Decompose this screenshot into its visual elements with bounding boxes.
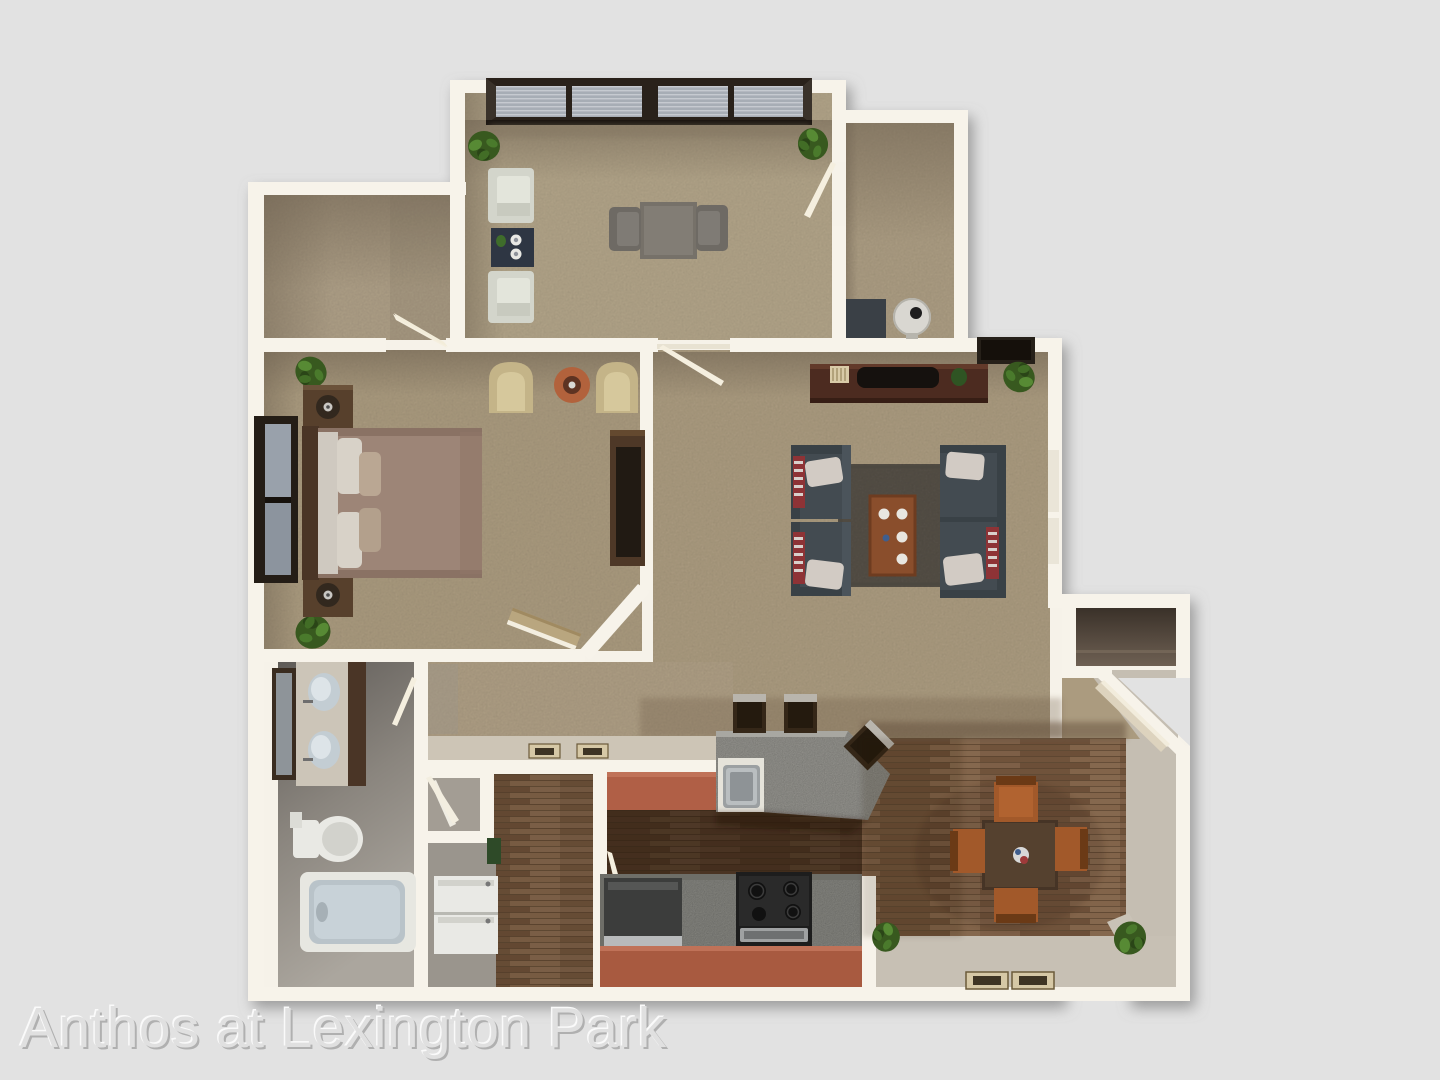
- svg-text:Anthos at Lexington Park: Anthos at Lexington Park: [20, 996, 667, 1060]
